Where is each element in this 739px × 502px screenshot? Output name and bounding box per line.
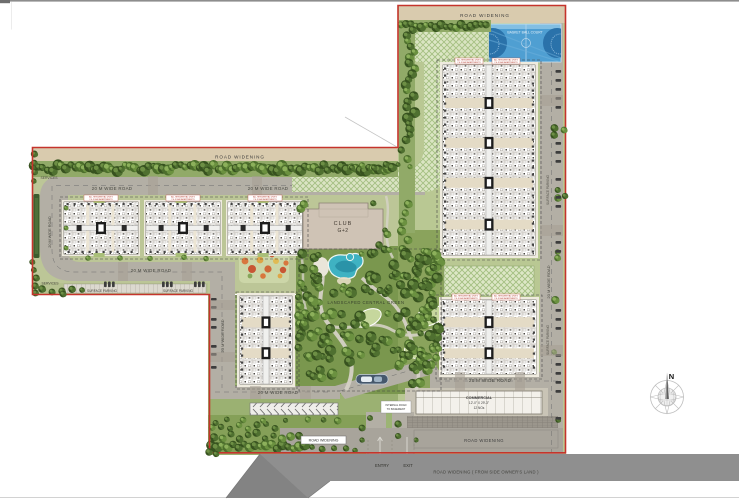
- svg-text:2 & 3 BHK APARTMENTS: 2 & 3 BHK APARTMENTS: [253, 198, 277, 201]
- svg-text:ALL RESIDENTIAL UNITS: ALL RESIDENTIAL UNITS: [454, 295, 478, 298]
- svg-text:ALL RESIDENTIAL UNITS: ALL RESIDENTIAL UNITS: [494, 295, 518, 298]
- svg-text:ALL RESIDENTIAL UNITS: ALL RESIDENTIAL UNITS: [253, 196, 277, 199]
- svg-text:20 M WIDE ROAD: 20 M WIDE ROAD: [469, 378, 512, 383]
- svg-text:N: N: [669, 372, 674, 381]
- svg-text:SURFACE PARKING: SURFACE PARKING: [546, 324, 550, 355]
- svg-text:2 & 3 BHK APARTMENTS: 2 & 3 BHK APARTMENTS: [454, 297, 478, 300]
- svg-text:ROAD WIDENING: ROAD WIDENING: [460, 13, 510, 18]
- svg-text:SURFACE PARKING: SURFACE PARKING: [87, 289, 118, 293]
- svg-text:2 & 3 BHK APARTMENTS: 2 & 3 BHK APARTMENTS: [171, 198, 195, 201]
- svg-text:2 & 3 BHK APARTMENTS: 2 & 3 BHK APARTMENTS: [494, 297, 518, 300]
- svg-text:2 & 3 BHK APARTMENTS: 2 & 3 BHK APARTMENTS: [89, 198, 113, 201]
- svg-text:CLUB: CLUB: [334, 221, 353, 227]
- svg-text:BASKET BALL COURT: BASKET BALL COURT: [507, 31, 542, 35]
- svg-text:ROAD WIDENING: ROAD WIDENING: [309, 439, 339, 443]
- svg-text:20 M WIDE ROAD: 20 M WIDE ROAD: [48, 216, 52, 248]
- svg-text:2 & 3 BHK APARTMENTS: 2 & 3 BHK APARTMENTS: [457, 61, 481, 64]
- svg-text:2 & 3 BHK APARTMENTS: 2 & 3 BHK APARTMENTS: [494, 61, 518, 64]
- svg-text:SURFACE PARKING: SURFACE PARKING: [163, 289, 194, 293]
- svg-text:SERVICES: SERVICES: [41, 282, 59, 286]
- svg-text:LANDSCAPED CENTRAL GREEN: LANDSCAPED CENTRAL GREEN: [328, 300, 405, 305]
- svg-text:TO BASEMENT: TO BASEMENT: [387, 407, 406, 411]
- svg-text:SURFACE PARKING: SURFACE PARKING: [546, 174, 550, 205]
- svg-text:20 M WIDE ROAD: 20 M WIDE ROAD: [92, 186, 133, 191]
- svg-text:ROAD WIDENING: ROAD WIDENING: [215, 155, 265, 160]
- svg-text:SERVICES: SERVICES: [40, 176, 58, 180]
- svg-text:20 M WIDE ROAD: 20 M WIDE ROAD: [131, 268, 172, 273]
- svg-text:ENTRY: ENTRY: [375, 463, 389, 468]
- svg-text:20 M WIDE ROAD: 20 M WIDE ROAD: [546, 265, 551, 298]
- svg-text:20 M WIDE ROAD: 20 M WIDE ROAD: [220, 319, 225, 352]
- svg-text:20 M WIDE ROAD: 20 M WIDE ROAD: [248, 186, 289, 191]
- svg-text:ROAD WIDENING ( FROM SIDE OWNE: ROAD WIDENING ( FROM SIDE OWNER'S LAND ): [433, 470, 539, 475]
- svg-text:INTERNAL ROAD: INTERNAL ROAD: [386, 403, 407, 407]
- svg-text:ALL RESIDENTIAL UNITS: ALL RESIDENTIAL UNITS: [457, 59, 481, 62]
- svg-text:ALL RESIDENTIAL UNITS: ALL RESIDENTIAL UNITS: [171, 196, 195, 199]
- svg-text:COMMERCIAL: COMMERCIAL: [466, 396, 493, 400]
- svg-text:20 M WIDE ROAD: 20 M WIDE ROAD: [258, 390, 299, 395]
- svg-text:EXIT: EXIT: [403, 463, 413, 468]
- svg-text:G+2: G+2: [337, 228, 348, 234]
- svg-text:ALL RESIDENTIAL UNITS: ALL RESIDENTIAL UNITS: [89, 196, 113, 199]
- svg-text:ALL RESIDENTIAL UNITS: ALL RESIDENTIAL UNITS: [494, 59, 518, 62]
- svg-text:12'-0" X 29'-3": 12'-0" X 29'-3": [469, 401, 489, 405]
- svg-text:12 NOs: 12 NOs: [474, 406, 485, 410]
- svg-text:ROAD WIDENING: ROAD WIDENING: [464, 438, 504, 443]
